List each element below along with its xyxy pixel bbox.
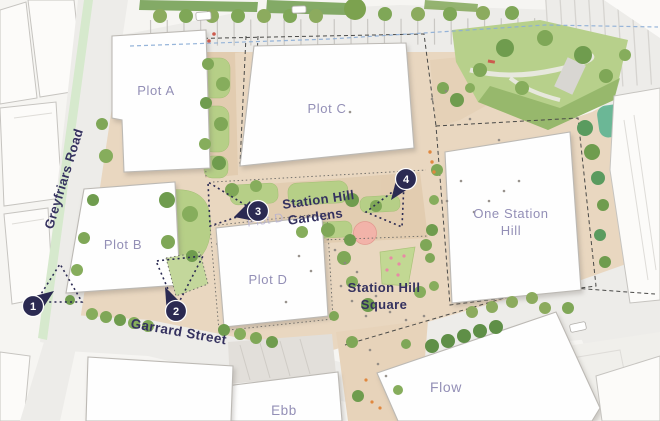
label-one-station-hill-line1: One Station <box>473 206 548 221</box>
label-plot-a: Plot A <box>137 83 175 98</box>
marker-3-number: 3 <box>255 206 261 218</box>
marker-2-number: 2 <box>173 306 179 318</box>
pink-plaza-circle <box>354 222 377 245</box>
marker-1-number: 1 <box>30 301 36 313</box>
label-square-line1: Station Hill <box>348 280 421 295</box>
label-flow: Flow <box>430 379 462 395</box>
plot-a-building <box>112 30 210 172</box>
label-plot-c: Plot C <box>307 101 346 116</box>
marker-4-number: 4 <box>403 174 410 186</box>
label-plot-d: Plot D <box>248 272 287 287</box>
car <box>196 11 212 20</box>
label-square-line2: Square <box>361 297 407 312</box>
label-one-station-hill-line2: Hill <box>501 223 521 238</box>
masterplan-map: Greyfriars Road Garrard Street Station H… <box>0 0 660 421</box>
label-ebb: Ebb <box>271 403 297 418</box>
map-canvas: Greyfriars Road Garrard Street Station H… <box>0 0 660 421</box>
southwest-building <box>86 357 233 421</box>
label-plot-b: Plot B <box>104 237 142 252</box>
van <box>292 6 306 13</box>
